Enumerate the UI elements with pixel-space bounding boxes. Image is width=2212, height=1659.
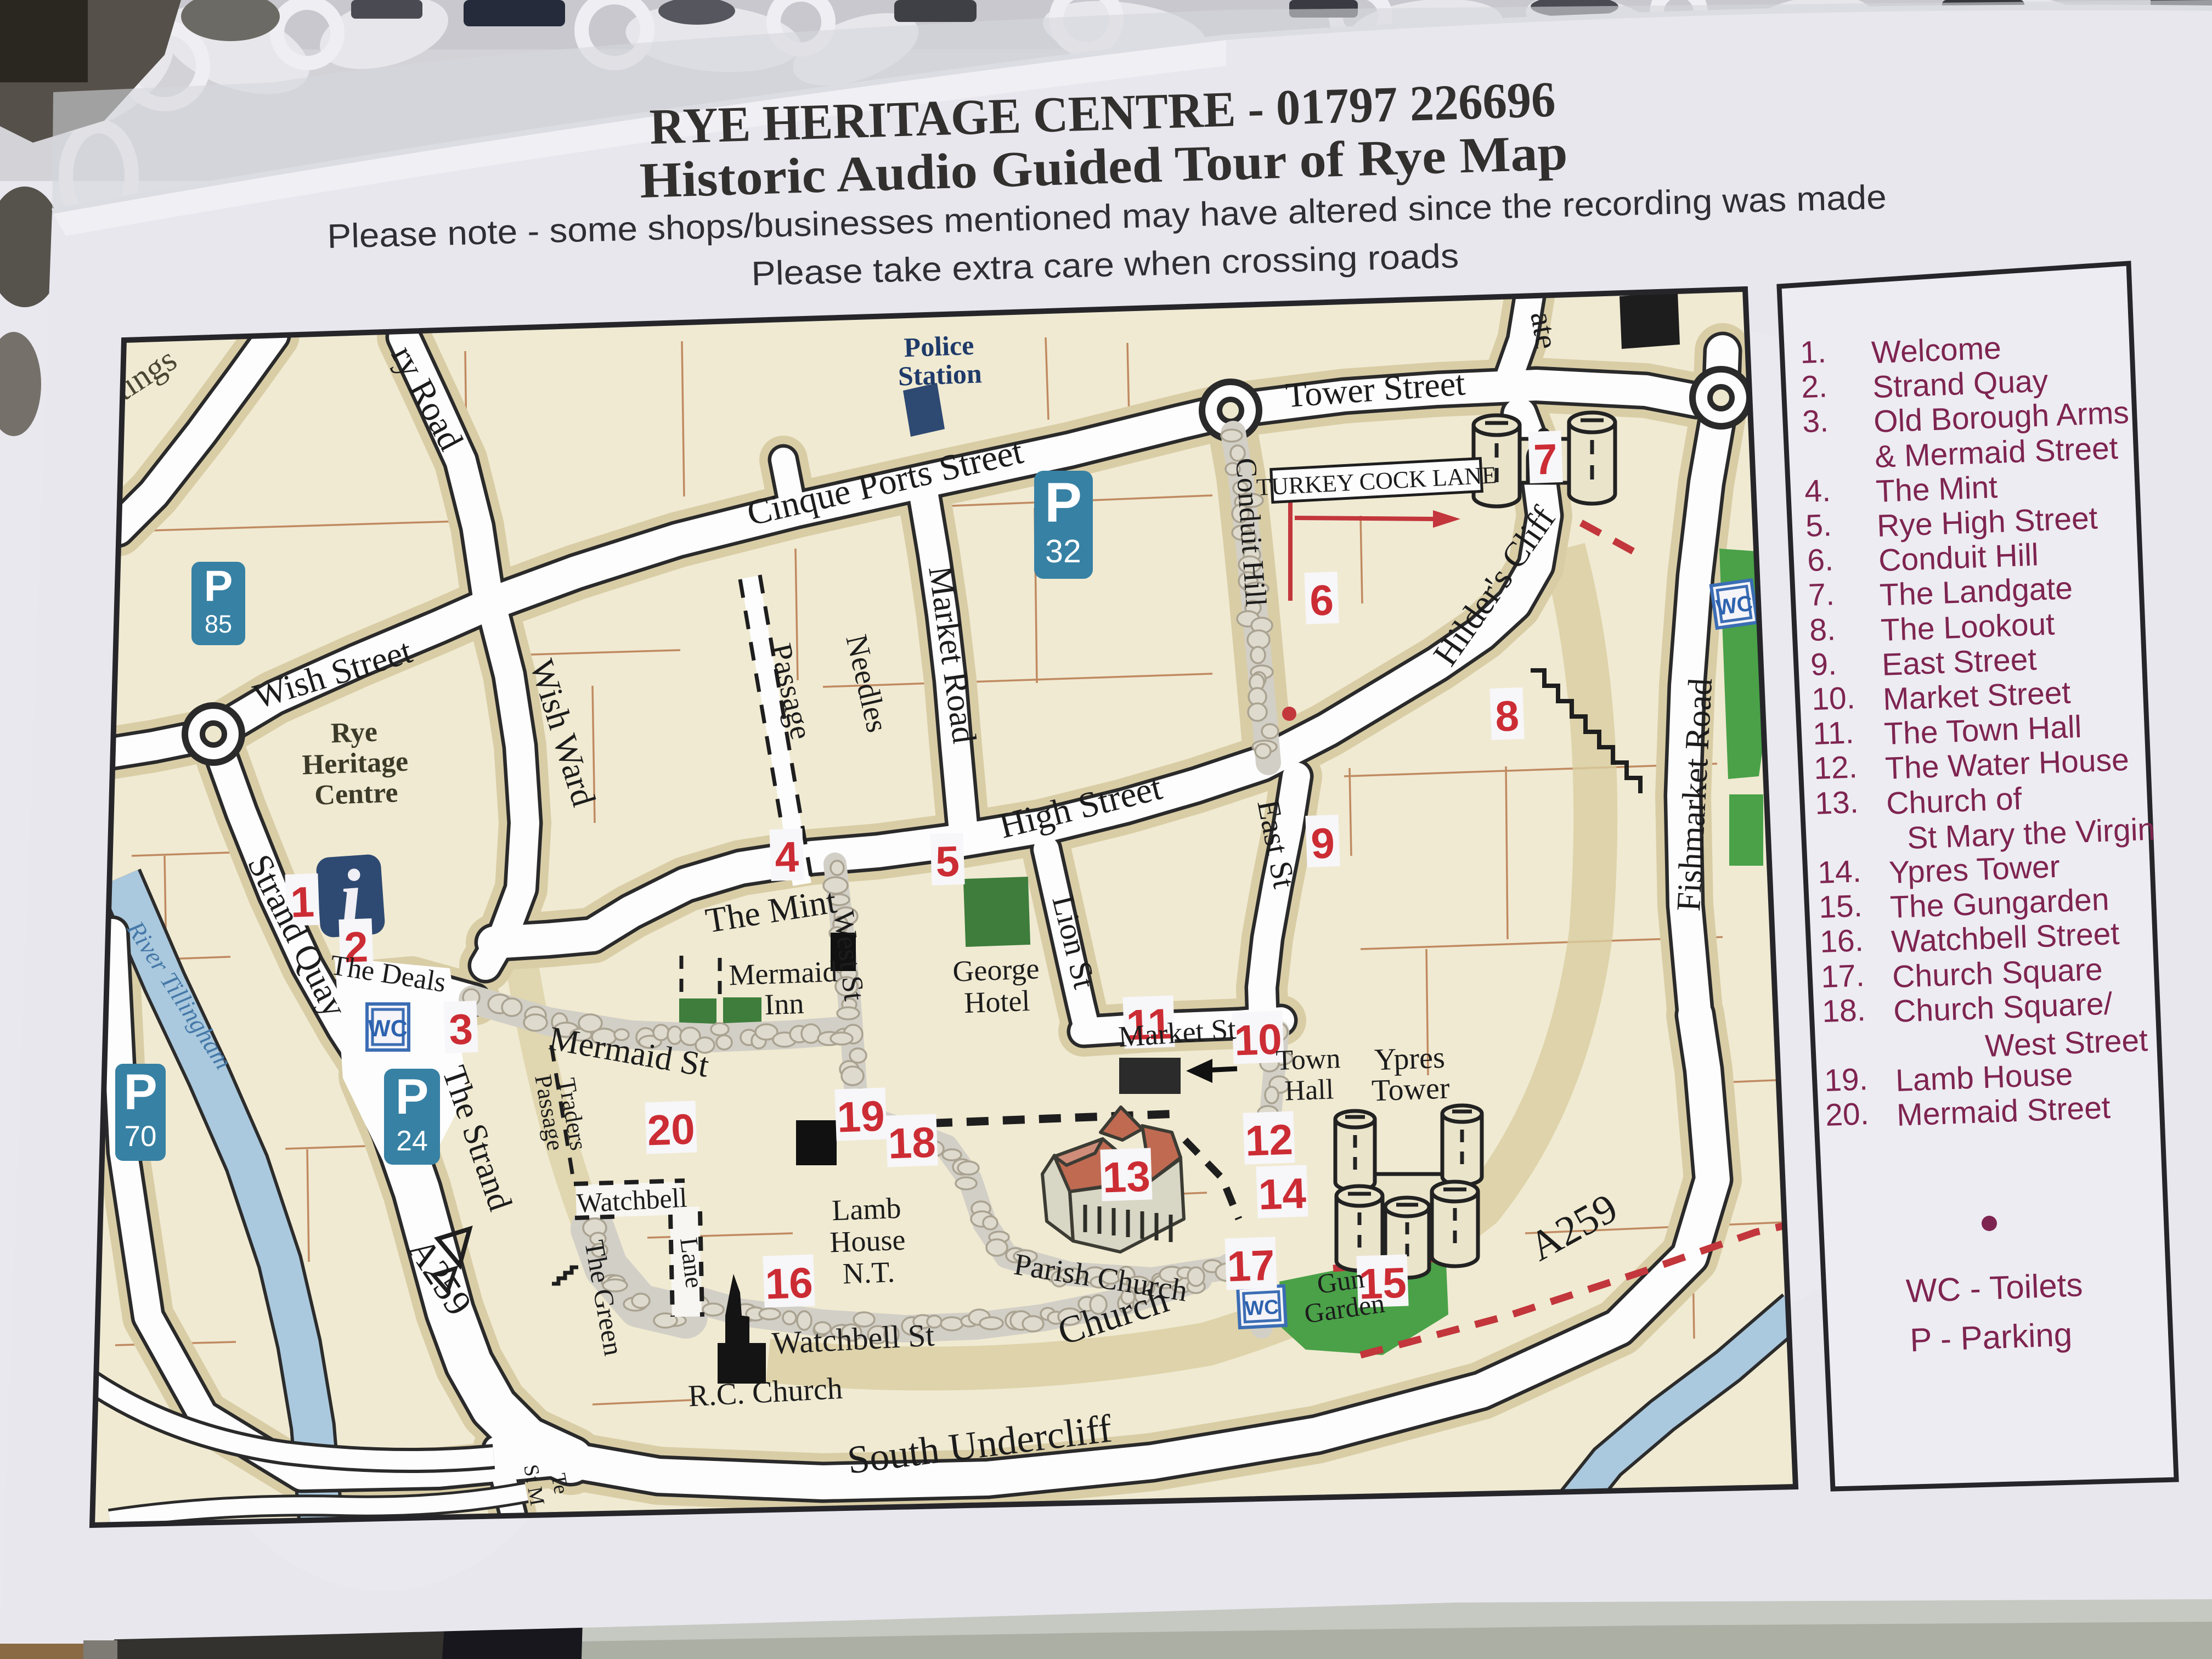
svg-text:Church of: Church of <box>1886 781 2022 821</box>
svg-text:Heritage: Heritage <box>302 746 409 781</box>
svg-text:Tower: Tower <box>1371 1071 1451 1108</box>
svg-text:19: 19 <box>836 1092 885 1142</box>
svg-text:Centre: Centre <box>314 777 398 811</box>
svg-text:Hotel: Hotel <box>963 984 1030 1019</box>
svg-text:4: 4 <box>774 832 799 881</box>
svg-text:ate: ate <box>1523 309 1565 352</box>
svg-text:WC - Toilets: WC - Toilets <box>1905 1266 2084 1310</box>
svg-text:12: 12 <box>1244 1115 1294 1165</box>
svg-text:24: 24 <box>396 1125 428 1157</box>
svg-text:N.T.: N.T. <box>842 1255 895 1290</box>
svg-text:18: 18 <box>887 1118 936 1168</box>
svg-text:32: 32 <box>1045 533 1081 569</box>
svg-text:5.: 5. <box>1805 507 1832 544</box>
svg-text:13: 13 <box>1102 1152 1151 1202</box>
svg-text:20.: 20. <box>1825 1096 1870 1133</box>
svg-text:Hall: Hall <box>1284 1074 1334 1107</box>
svg-text:15.: 15. <box>1818 888 1863 925</box>
svg-text:P: P <box>123 1064 157 1120</box>
svg-text:8.: 8. <box>1809 612 1836 648</box>
svg-text:13.: 13. <box>1814 785 1859 821</box>
svg-text:12.: 12. <box>1813 749 1858 786</box>
svg-text:1.: 1. <box>1799 334 1827 370</box>
svg-text:9: 9 <box>1310 819 1335 867</box>
svg-text:16: 16 <box>764 1259 814 1308</box>
svg-text:Rye: Rye <box>330 716 378 749</box>
svg-text:7.: 7. <box>1808 577 1835 613</box>
svg-text:4.: 4. <box>1804 473 1831 509</box>
svg-text:16.: 16. <box>1819 923 1864 960</box>
svg-text:3.: 3. <box>1802 403 1829 439</box>
svg-text:18.: 18. <box>1821 992 1866 1029</box>
svg-text:6.: 6. <box>1807 542 1834 578</box>
svg-text:85: 85 <box>205 610 232 638</box>
svg-text:The Mint: The Mint <box>1875 470 1998 509</box>
svg-text:Conduit Hill: Conduit Hill <box>1878 537 2039 578</box>
svg-text:11.: 11. <box>1812 715 1854 752</box>
svg-text:Te: Te <box>546 1471 573 1496</box>
svg-text:3: 3 <box>448 1005 473 1053</box>
svg-text:70: 70 <box>125 1120 157 1153</box>
svg-text:Inn: Inn <box>764 987 804 1021</box>
svg-text:8: 8 <box>1494 691 1520 740</box>
svg-text:9.: 9. <box>1810 646 1837 682</box>
svg-text:14.: 14. <box>1817 854 1862 890</box>
svg-text:WC: WC <box>1244 1295 1279 1319</box>
svg-text:P: P <box>204 561 233 610</box>
svg-text:House: House <box>829 1223 906 1259</box>
svg-text:Station: Station <box>898 358 983 391</box>
svg-text:5: 5 <box>935 837 960 885</box>
svg-text:WC: WC <box>1714 591 1754 620</box>
svg-text:7: 7 <box>1533 435 1558 483</box>
svg-text:20: 20 <box>646 1105 696 1155</box>
svg-text:Welcome: Welcome <box>1871 330 2002 370</box>
svg-text:P - Parking: P - Parking <box>1909 1316 2073 1359</box>
svg-text:6: 6 <box>1309 575 1334 624</box>
svg-text:17: 17 <box>1226 1241 1276 1291</box>
svg-text:Lamb: Lamb <box>831 1192 901 1227</box>
svg-text:WC: WC <box>368 1015 408 1042</box>
svg-text:2.: 2. <box>1801 369 1828 405</box>
svg-text:P: P <box>1045 471 1082 534</box>
svg-text:East Street: East Street <box>1881 642 2037 682</box>
svg-text:Mermaid: Mermaid <box>728 955 838 992</box>
svg-text:P: P <box>396 1069 429 1125</box>
svg-text:17.: 17. <box>1820 958 1865 995</box>
svg-text:Watchbell: Watchbell <box>576 1182 688 1218</box>
svg-text:19.: 19. <box>1824 1062 1869 1098</box>
svg-text:10.: 10. <box>1811 680 1856 717</box>
svg-text:George: George <box>952 952 1040 988</box>
svg-text:Police: Police <box>904 330 975 363</box>
svg-text:14: 14 <box>1257 1169 1307 1219</box>
svg-text:Town: Town <box>1276 1043 1341 1076</box>
